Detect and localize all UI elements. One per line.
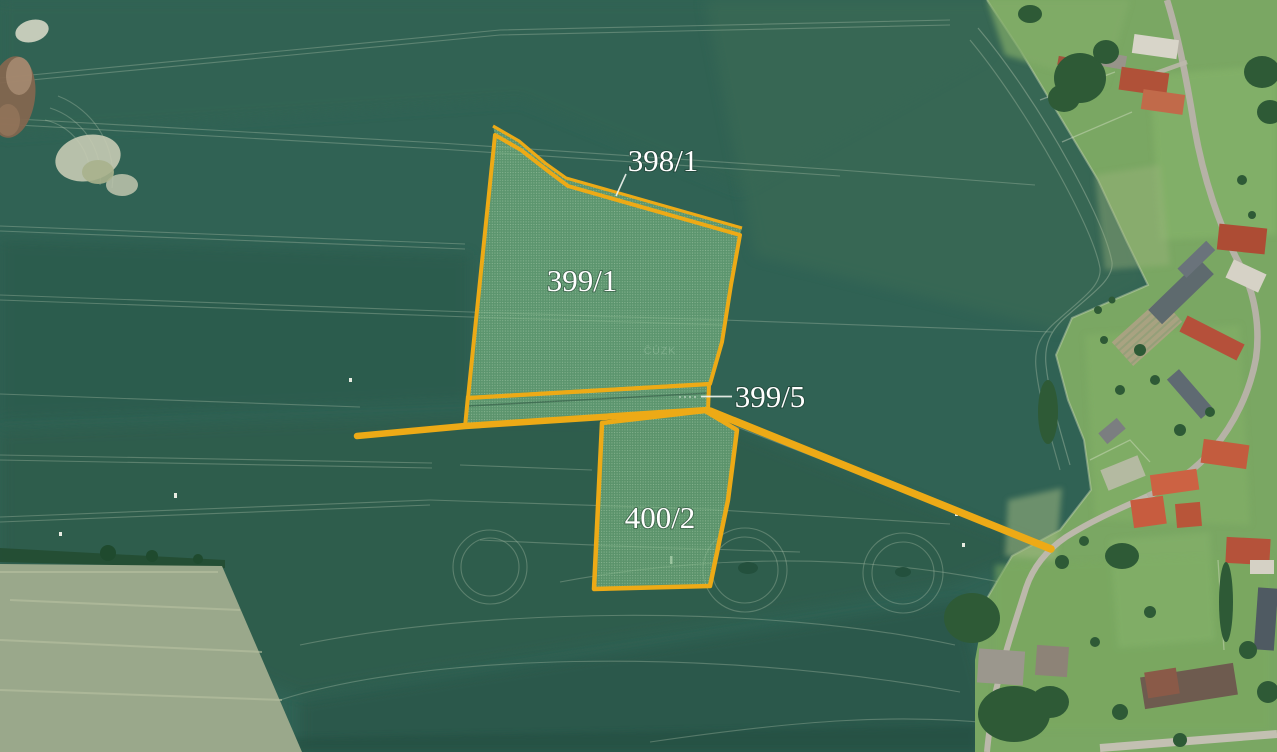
svg-text:398/1: 398/1 <box>628 143 699 178</box>
svg-text:399/1: 399/1 <box>547 263 618 298</box>
svg-text:ČÚZK: ČÚZK <box>644 344 677 357</box>
svg-text:400/2: 400/2 <box>625 500 696 535</box>
svg-text:399/5: 399/5 <box>735 379 806 414</box>
